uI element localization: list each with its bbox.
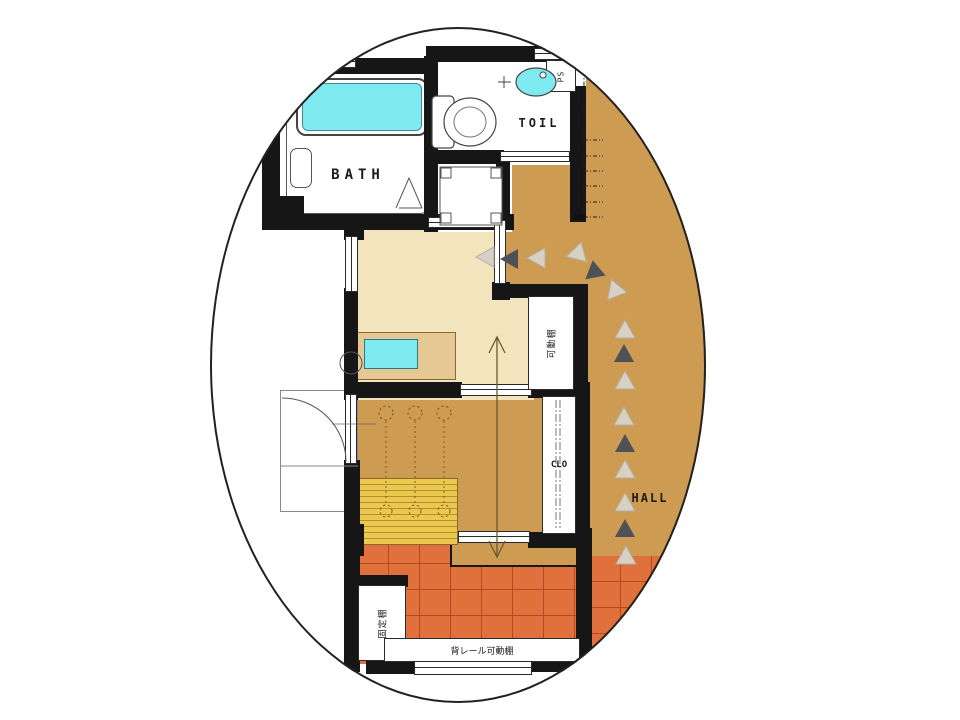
bench-slats (358, 478, 458, 545)
window (336, 56, 356, 68)
window (534, 48, 570, 60)
pipe-space-label: PS (556, 70, 565, 82)
wall (426, 150, 504, 164)
wall (350, 382, 462, 398)
wall (574, 382, 590, 548)
floor-plan-page: PS 可動棚 CLO 固定棚 背レール可動棚 (0, 0, 960, 720)
wall (426, 46, 546, 62)
toilet-label: TOIL (516, 115, 562, 131)
fixed-shelf-label: 固定棚 (375, 608, 388, 638)
wall (344, 288, 358, 400)
washroom-floor-upper (350, 224, 506, 300)
movable-shelf-box: 可動棚 (528, 296, 574, 390)
floor-plan-ellipse-clip: PS 可動棚 CLO 固定棚 背レール可動棚 (210, 27, 706, 703)
entry-tile-floor-side (590, 556, 668, 658)
mudroom-sliding-door (460, 384, 532, 396)
bathtub-water (302, 83, 422, 131)
rail-shelf-label: 背レール可動棚 (450, 644, 513, 657)
closet-label: CLO (551, 460, 567, 470)
closet-sliding-door (458, 531, 530, 543)
wall (424, 56, 438, 232)
wall (496, 162, 510, 224)
washroom-sliding-door (494, 220, 506, 284)
rail-shelf-box: 背レール可動棚 (384, 638, 580, 662)
hall-label: HALL (624, 490, 676, 506)
wall (570, 86, 586, 222)
bath-label: BATH (318, 166, 398, 184)
toilet-sliding-door (500, 151, 570, 162)
bath-stool (290, 148, 312, 188)
entry-door-leaf (345, 394, 357, 464)
vanity-sink (364, 339, 418, 369)
bath-sliding-door (428, 217, 500, 228)
wall (344, 524, 364, 556)
wall (572, 284, 588, 398)
closet-clo-box: CLO (542, 396, 576, 534)
entrance-sliding-door (414, 661, 532, 675)
window (345, 236, 358, 292)
movable-shelf-label: 可動棚 (544, 328, 557, 358)
pipe-space-box: PS (546, 60, 576, 92)
